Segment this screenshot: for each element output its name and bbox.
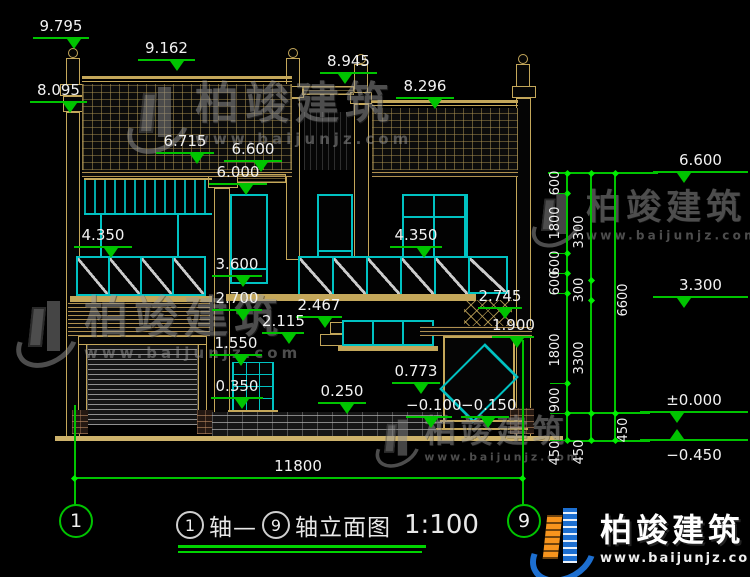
brand-url: www.baijunjz.com [600, 551, 750, 566]
title-scale: 1:100 [404, 510, 479, 540]
title-underline [178, 545, 426, 548]
title-axis-circle-start: 1 [176, 511, 204, 539]
title-axis-circle-end: 9 [262, 511, 290, 539]
title-text-suffix: 轴立面图 [295, 508, 391, 542]
brand-logo: 柏竣建筑 www.baijunjz.com [528, 502, 750, 577]
brand-logo-icon [528, 505, 592, 575]
axis-bubble-1: 1 [59, 504, 93, 538]
elevation-drawing-canvas: 柏竣建筑 www.baijunjz.com 柏竣建筑 www.baijunjz.… [0, 0, 750, 577]
title-text-mid: 轴— [209, 508, 257, 542]
title-underline-2 [178, 551, 422, 553]
drawing-title: 1 轴— 9 轴立面图 1:100 [176, 508, 479, 542]
logo-building-blue-icon [563, 508, 577, 563]
brand-name: 柏竣建筑 [600, 513, 750, 548]
axis-layer: 19 [0, 0, 750, 577]
